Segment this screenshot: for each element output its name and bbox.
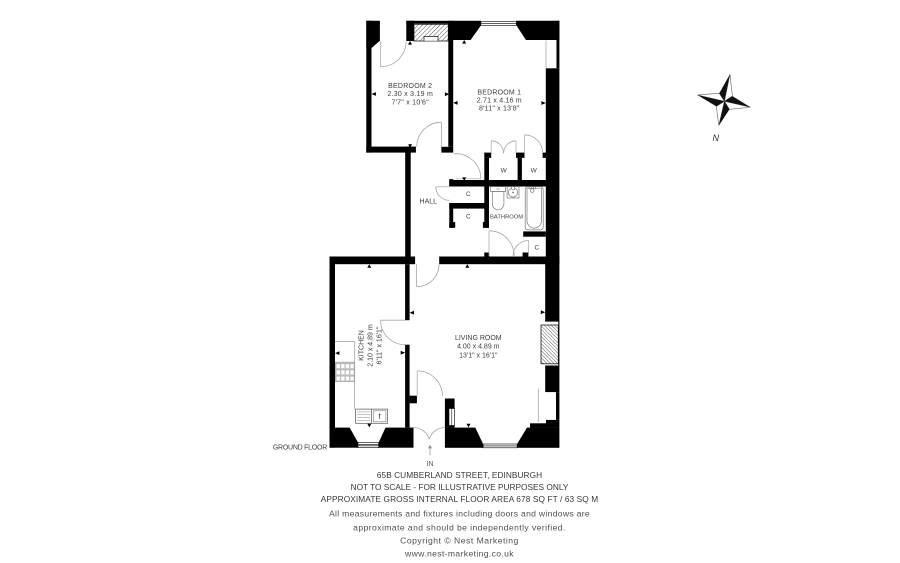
svg-text:NOT TO SCALE - FOR ILLUSTRATIV: NOT TO SCALE - FOR ILLUSTRATIVE PURPOSES… [351,482,569,492]
svg-text:C: C [466,213,471,220]
svg-text:8'11" x 13'8": 8'11" x 13'8" [479,105,520,112]
svg-text:BATHROOM: BATHROOM [490,214,523,220]
svg-text:BEDROOM 2: BEDROOM 2 [388,83,432,90]
svg-text:LIVING ROOM: LIVING ROOM [455,335,502,342]
svg-text:C: C [534,245,539,252]
svg-text:GROUND FLOOR: GROUND FLOOR [273,444,327,451]
svg-text:65B CUMBERLAND STREET, EDINBUR: 65B CUMBERLAND STREET, EDINBURGH [377,470,542,480]
svg-text:All measurements and fixtures: All measurements and fixtures including … [329,509,590,519]
svg-text:2.30 x 3.19 m: 2.30 x 3.19 m [387,91,433,98]
svg-text:W: W [501,168,508,175]
svg-text:www.nest-marketing.co.uk: www.nest-marketing.co.uk [404,548,514,558]
svg-text:approximate and should be inde: approximate and should be independently … [353,522,566,532]
svg-text:7'7" x 10'6": 7'7" x 10'6" [391,99,429,106]
svg-text:W: W [531,168,538,175]
svg-text:Copyright © Nest Marketing: Copyright © Nest Marketing [400,536,519,546]
svg-text:2.10 x 4.89 m: 2.10 x 4.89 m [368,324,375,367]
svg-text:N: N [713,133,720,143]
svg-text:APPROXIMATE GROSS INTERNAL FLO: APPROXIMATE GROSS INTERNAL FLOOR AREA 67… [321,494,599,504]
svg-text:BEDROOM 1: BEDROOM 1 [477,89,521,96]
svg-text:HALL: HALL [420,199,438,206]
svg-text:C: C [466,191,471,198]
svg-text:13'1" x 16'1": 13'1" x 16'1" [459,352,498,359]
svg-text:2.71 x 4.16 m: 2.71 x 4.16 m [477,98,522,105]
svg-text:4.00 x 4.89 m: 4.00 x 4.89 m [457,344,500,351]
svg-text:6'11" x 16'1": 6'11" x 16'1" [376,326,383,364]
svg-text:IN: IN [427,461,434,468]
svg-text:KITCHEN: KITCHEN [359,330,366,361]
